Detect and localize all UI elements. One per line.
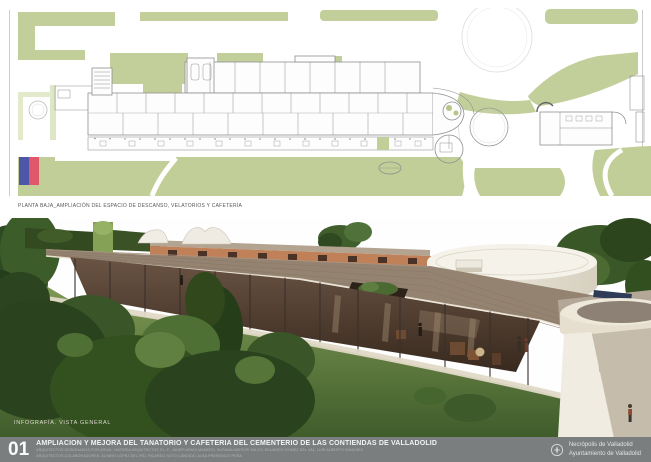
presentation-sheet: PLANTA BAJA_AMPLIACIÓN DEL ESPACIO DE DE…: [0, 0, 651, 462]
org-line-1: Necrópolis de Valladolid: [569, 441, 641, 449]
sheet-number: 01: [8, 440, 29, 459]
plan-legend-marker: [19, 157, 39, 185]
render-right-structures: [558, 290, 651, 437]
plan-caption: PLANTA BAJA_AMPLIACIÓN DEL ESPACIO DE DE…: [18, 203, 242, 209]
title-block: 01 AMPLIACIÓN Y MEJORA DEL TANATORIO Y C…: [0, 437, 651, 462]
org-line-2: Ayuntamiento de Valladolid: [569, 450, 641, 458]
sheet-title: AMPLIACIÓN Y MEJORA DEL TANATORIO Y CAFE…: [36, 440, 550, 447]
floor-plan-drawing: [0, 8, 651, 200]
organization-block: Necrópolis de Valladolid Ayuntamiento de…: [550, 441, 641, 458]
organization-names: Necrópolis de Valladolid Ayuntamiento de…: [569, 441, 641, 458]
ayuntamiento-logo-icon: [550, 443, 564, 457]
credits-line-2: ARQUITECTOS COLABORADORES: ÁLVARO LÓPEZ …: [36, 454, 550, 459]
plan-left-court: [29, 101, 47, 119]
plan-roundabout: [459, 8, 533, 146]
title-text-block: AMPLIACIÓN Y MEJORA DEL TANATORIO Y CAFE…: [36, 440, 550, 458]
render-label: INFOGRAFÍA. VISTA GENERAL: [14, 420, 111, 426]
plan-grass-field: [18, 146, 651, 196]
sheet-credits: ARQUITECTOS DESIGNADOS POR ARVAL: MATERI…: [36, 448, 550, 458]
render-image: [0, 218, 651, 437]
